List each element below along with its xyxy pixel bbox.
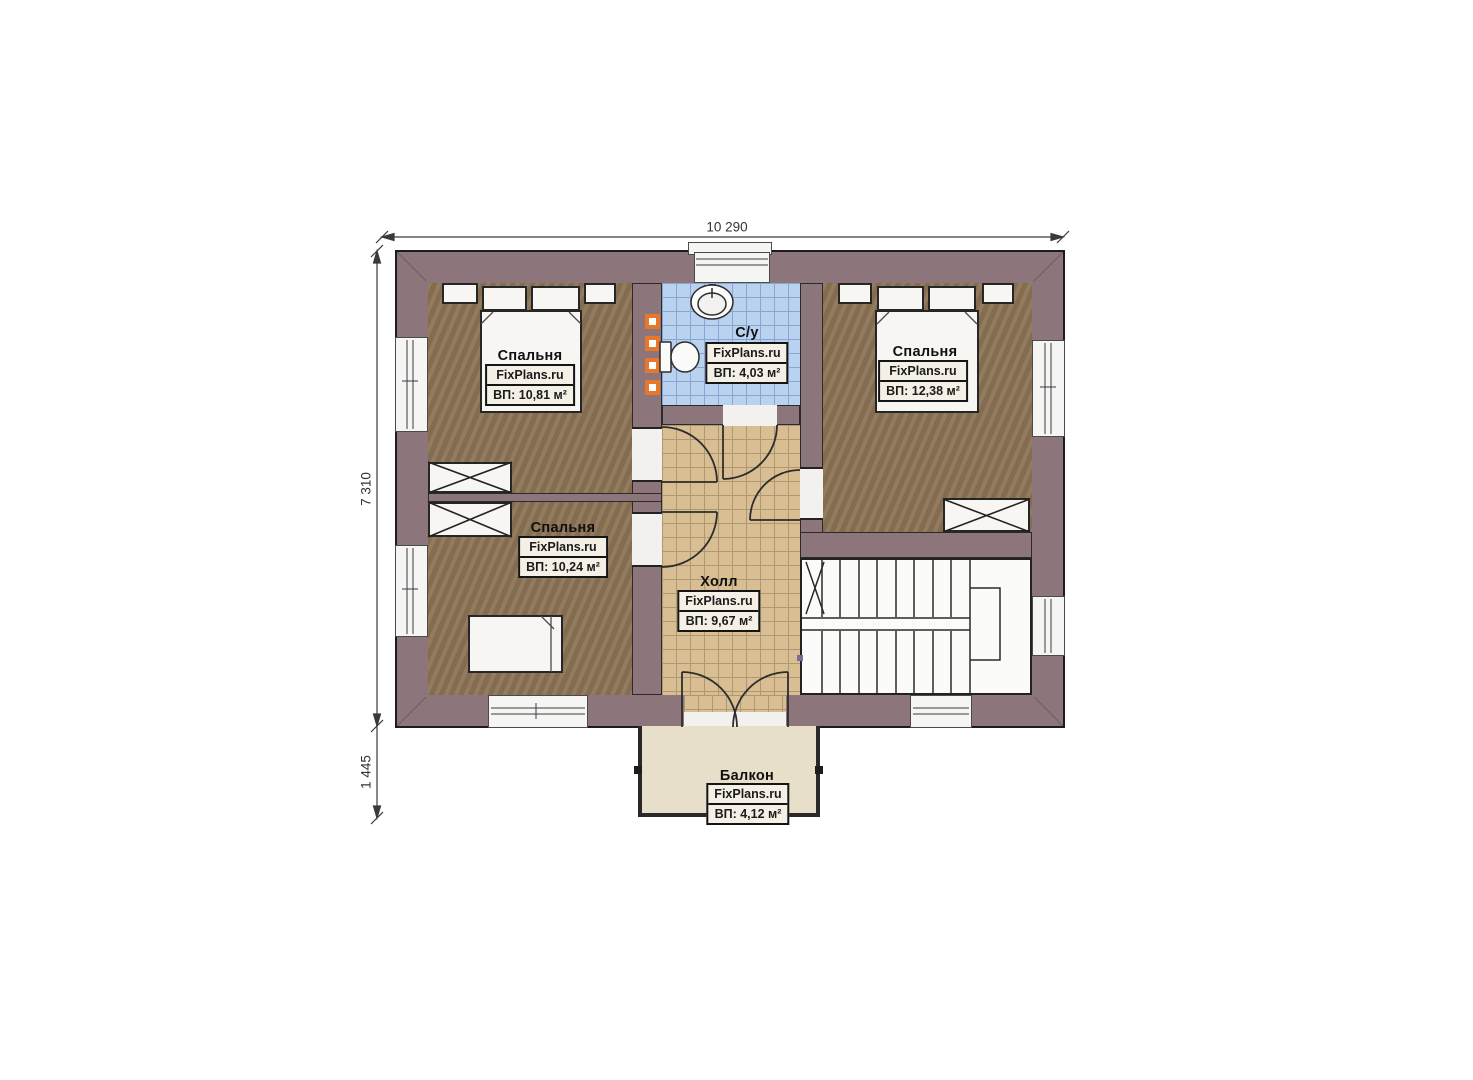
watermark: FixPlans.ru xyxy=(487,366,573,386)
room-info-balcony: FixPlans.ru ВП: 4,12 м² xyxy=(706,783,789,825)
stair-treads xyxy=(802,560,1000,693)
floor-plan-canvas: 10 290 7 310 1 445 Спальня FixPlans.ru В… xyxy=(0,0,1473,1080)
watermark: FixPlans.ru xyxy=(880,362,966,382)
room-label-bathroom: С/у xyxy=(735,325,758,341)
area-label: ВП: 9,67 м² xyxy=(679,612,758,630)
area-label: ВП: 4,03 м² xyxy=(707,364,786,382)
room-info-hall: FixPlans.ru ВП: 9,67 м² xyxy=(677,590,760,632)
dimension-width-label: 10 290 xyxy=(706,220,747,235)
room-info-bedroom-top-right: FixPlans.ru ВП: 12,38 м² xyxy=(878,360,968,402)
watermark: FixPlans.ru xyxy=(679,592,758,612)
watermark: FixPlans.ru xyxy=(520,538,606,558)
toilet xyxy=(660,342,699,372)
dimension-height-label: 7 310 xyxy=(359,472,374,506)
room-label-balcony: Балкон xyxy=(720,768,774,784)
dimension-balcony-label: 1 445 xyxy=(359,755,374,789)
room-label-bedroom-top-left: Спальня xyxy=(498,348,563,364)
area-label: ВП: 10,81 м² xyxy=(487,386,573,404)
watermark: FixPlans.ru xyxy=(708,785,787,805)
room-label-bedroom-top-right: Спальня xyxy=(893,344,958,360)
plan-linework xyxy=(0,0,1473,1080)
wardrobe-cross xyxy=(428,462,1030,537)
dimension-lines xyxy=(371,231,1069,824)
room-info-bedroom-top-left: FixPlans.ru ВП: 10,81 м² xyxy=(485,364,575,406)
room-info-bedroom-bottom-left: FixPlans.ru ВП: 10,24 м² xyxy=(518,536,608,578)
watermark: FixPlans.ru xyxy=(707,344,786,364)
stair-newel-dot xyxy=(797,655,803,661)
room-label-bedroom-bottom-left: Спальня xyxy=(531,520,596,536)
wardrobe-dashed-edge xyxy=(428,463,1030,536)
room-label-hall: Холл xyxy=(700,574,738,590)
area-label: ВП: 10,24 м² xyxy=(520,558,606,576)
area-label: ВП: 12,38 м² xyxy=(880,382,966,400)
sink xyxy=(691,284,733,319)
area-label: ВП: 4,12 м² xyxy=(708,805,787,823)
room-info-bathroom: FixPlans.ru ВП: 4,03 м² xyxy=(705,342,788,384)
